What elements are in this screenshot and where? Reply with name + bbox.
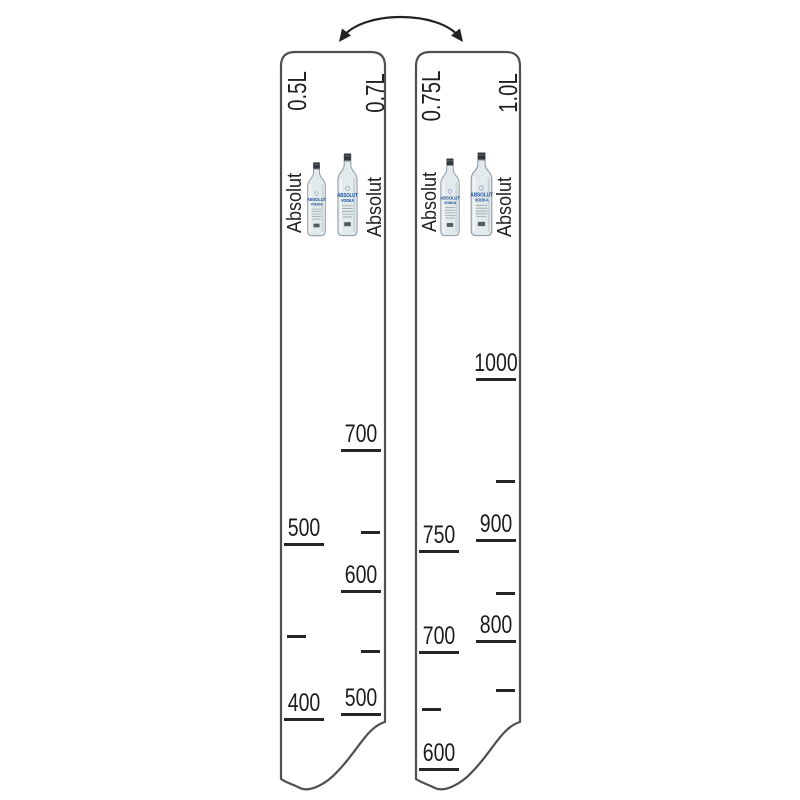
scale-tick-minor bbox=[361, 531, 380, 534]
scale-tick-800: 800 bbox=[476, 640, 516, 643]
scale-tick-500: 500 bbox=[341, 713, 381, 716]
scale-tick-label: 1000 bbox=[474, 351, 517, 376]
scale-tick-line bbox=[476, 539, 516, 542]
scale-tick-line bbox=[496, 592, 515, 595]
scale-tick-line bbox=[496, 689, 515, 692]
scale-tick-minor bbox=[496, 689, 515, 692]
scale-tick-line bbox=[341, 590, 381, 593]
scale-tick-line bbox=[476, 378, 516, 381]
scale-tick-line bbox=[361, 650, 380, 653]
scale-tick-600: 600 bbox=[341, 590, 381, 593]
scale-tick-line bbox=[476, 640, 516, 643]
bar-ruler-strip-2: 0.75L 1.0L Absolut Absolut ABSOLUT VODKA… bbox=[416, 52, 520, 792]
scale-tick-label: 700 bbox=[345, 422, 378, 447]
bar-ruler-strip-1: 0.5L 0.7L Absolut Absolut ABSOLUT VODKA … bbox=[281, 52, 385, 792]
scale-tick-minor bbox=[496, 592, 515, 595]
scale-tick-label: 500 bbox=[345, 686, 378, 711]
scale-tick-900: 900 bbox=[476, 539, 516, 542]
scale-tick-line bbox=[341, 449, 381, 452]
scale-tick-line bbox=[341, 713, 381, 716]
product-image-bar-rulers: 0.5L 0.7L Absolut Absolut ABSOLUT VODKA … bbox=[0, 0, 800, 800]
scale-tick-minor bbox=[496, 480, 515, 483]
scale-tick-minor bbox=[361, 650, 380, 653]
scale-tick-line bbox=[361, 531, 380, 534]
scale-column-1-0l: 1000900800 bbox=[416, 52, 520, 792]
scale-column-0-7l: 700600500 bbox=[281, 52, 385, 792]
scale-tick-1000: 1000 bbox=[476, 378, 516, 381]
scale-tick-line bbox=[496, 480, 515, 483]
scale-tick-label: 900 bbox=[480, 512, 513, 537]
scale-tick-label: 600 bbox=[345, 563, 378, 588]
scale-tick-700: 700 bbox=[341, 449, 381, 452]
flip-arrow-icon bbox=[330, 0, 475, 50]
scale-tick-label: 800 bbox=[480, 613, 513, 638]
